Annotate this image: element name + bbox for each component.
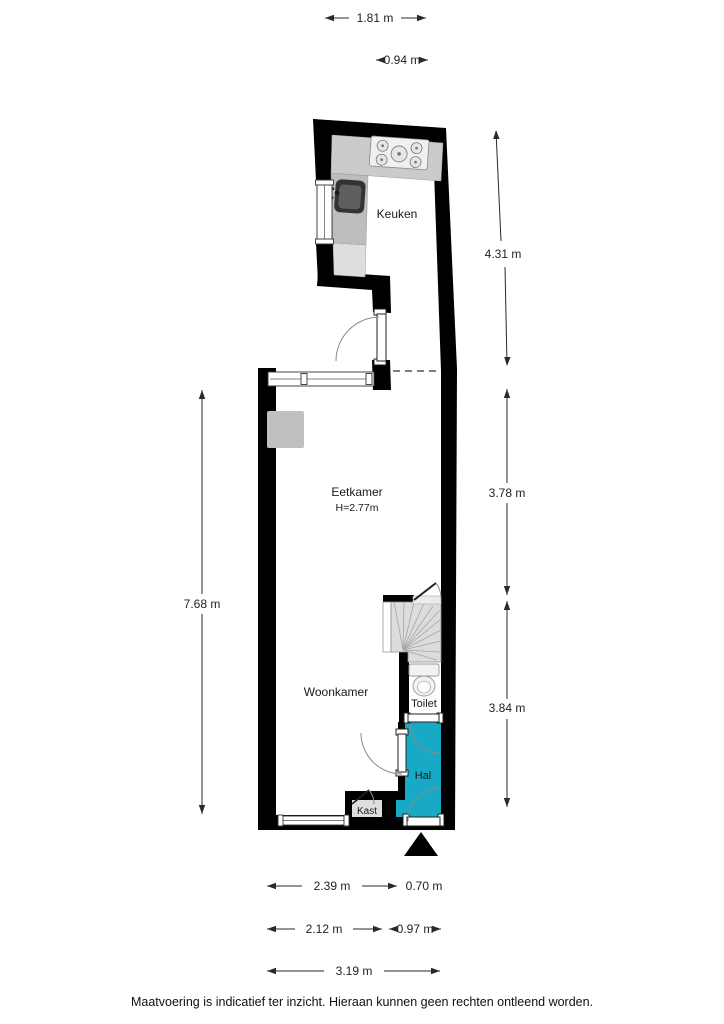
- entrance-arrow-icon: [404, 832, 438, 856]
- dim-top-upper: 0.94 m: [376, 53, 428, 67]
- svg-text:0.94 m: 0.94 m: [384, 53, 421, 67]
- room-label-hal: Hal: [415, 770, 432, 782]
- dim-right-eetkamer: 3.78 m: [489, 389, 526, 595]
- dim-right-woonkamer: 3.84 m: [489, 601, 526, 807]
- stairs-side-strip: [383, 602, 391, 652]
- toilet-bowl-inner: [418, 681, 431, 693]
- room-label-kast: Kast: [357, 806, 377, 817]
- chimney-block: [267, 411, 304, 448]
- stove-icon: [369, 136, 429, 170]
- door-woonkamer-hal: [361, 729, 408, 776]
- svg-text:3.78 m: 3.78 m: [489, 486, 526, 500]
- svg-text:0.97 m: 0.97 m: [397, 922, 434, 936]
- svg-text:4.31 m: 4.31 m: [485, 247, 522, 261]
- dim-right-kitchen: 4.31 m: [485, 130, 522, 366]
- floorplan-page: Keuken Eetkamer H=2.77m Woonkamer Toilet…: [0, 0, 724, 1024]
- dim-bottom-row1: 2.39 m 0.70 m: [267, 879, 442, 893]
- wall-kitchen-step: [317, 271, 391, 313]
- footer-disclaimer: Maatvoering is indicatief ter inzicht. H…: [131, 995, 593, 1009]
- door-kitchen: [336, 309, 386, 365]
- kitchen-appliance: [333, 243, 366, 277]
- stairs-area: [391, 602, 441, 662]
- dim-bottom-row3: 3.19 m: [267, 964, 440, 978]
- window-eetkamer: [268, 372, 374, 386]
- room-label-keuken: Keuken: [377, 207, 418, 221]
- window-woonkamer: [278, 815, 349, 826]
- room-height-eetkamer: H=2.77m: [336, 502, 379, 514]
- window-kitchen: [316, 180, 334, 244]
- room-label-toilet: Toilet: [411, 698, 437, 710]
- room-label-woonkamer: Woonkamer: [304, 685, 368, 699]
- room-label-eetkamer: Eetkamer: [331, 485, 382, 499]
- svg-text:2.39 m: 2.39 m: [314, 879, 351, 893]
- svg-text:2.12 m: 2.12 m: [306, 922, 343, 936]
- svg-text:0.70 m: 0.70 m: [406, 879, 443, 893]
- svg-text:7.68 m: 7.68 m: [184, 597, 221, 611]
- floorplan-drawing: Keuken Eetkamer H=2.77m Woonkamer Toilet…: [0, 0, 724, 1024]
- svg-text:3.19 m: 3.19 m: [336, 964, 373, 978]
- svg-text:3.84 m: 3.84 m: [489, 701, 526, 715]
- svg-text:1.81 m: 1.81 m: [357, 11, 394, 25]
- dim-top-kitchen: 1.81 m: [325, 11, 426, 25]
- dim-bottom-row2: 2.12 m 0.97 m: [267, 922, 441, 936]
- toilet-tank: [409, 664, 439, 676]
- dim-left-total: 7.68 m: [184, 390, 221, 814]
- wall-toilet-left: [399, 650, 409, 723]
